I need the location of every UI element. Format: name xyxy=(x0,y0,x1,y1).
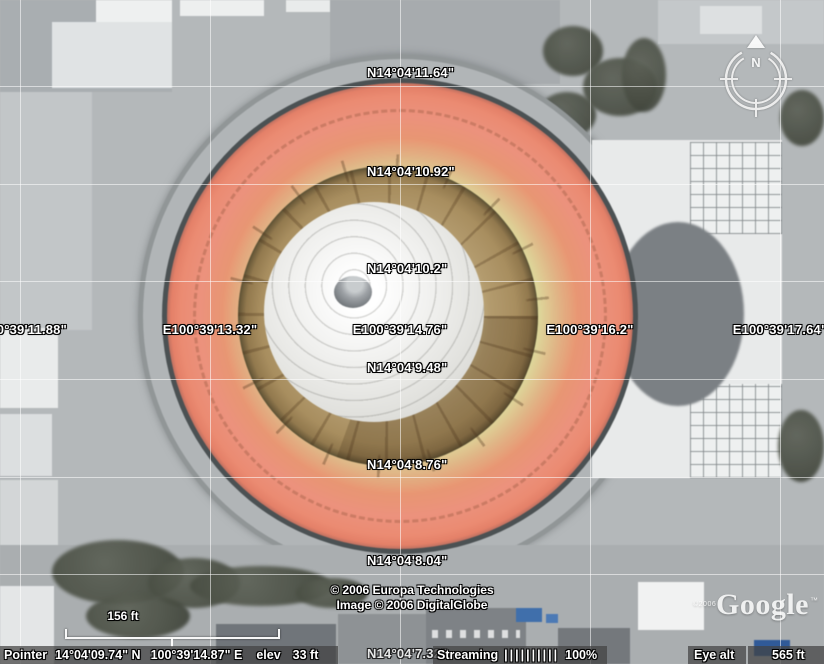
grid-label-latitude: N14°04'10.92" xyxy=(367,164,455,179)
north-arrow-icon xyxy=(747,35,765,48)
grid-label-latitude: N14°04'11.64" xyxy=(367,65,454,80)
grid-line-horizontal xyxy=(0,574,824,575)
elevation-label: elev xyxy=(256,648,280,662)
status-bar: Pointer 14°04'09.74" N 100°39'14.87" E e… xyxy=(0,646,824,664)
grid-label-latitude: N14°04'9.48" xyxy=(367,360,447,375)
grid-label-longitude: E100°39'16.2" xyxy=(546,322,633,337)
grid-line-horizontal xyxy=(0,184,824,185)
streaming-percent: 100% xyxy=(565,648,597,662)
eye-alt-value: 565 ft xyxy=(772,648,805,662)
google-watermark: ©2006 Google ™ xyxy=(688,588,824,628)
streaming-status-chip: Streaming |||||||||| 100% xyxy=(433,646,607,664)
grid-label-latitude: N14°04'8.76" xyxy=(367,457,447,472)
grid-label-latitude: N14°04'8.04" xyxy=(367,553,447,568)
compass-north-label: N xyxy=(751,55,760,70)
pointer-latitude: 14°04'09.74" N xyxy=(55,648,141,662)
google-logo: Google xyxy=(716,588,809,622)
elevation-value: 33 ft xyxy=(293,648,319,662)
compass-rose[interactable]: N xyxy=(712,29,800,121)
eye-alt-label: Eye alt xyxy=(694,648,734,662)
grid-label-latitude: N14°04'10.2" xyxy=(367,261,447,276)
pointer-longitude: 100°39'14.87" E xyxy=(151,648,243,662)
pointer-status-chip: Pointer 14°04'09.74" N 100°39'14.87" E e… xyxy=(0,646,338,664)
logo-copyright: ©2006 xyxy=(693,601,716,608)
grid-line-horizontal xyxy=(0,379,824,380)
grid-label-longitude: E100°39'14.76" xyxy=(353,322,448,337)
grid-label-longitude: E100°39'13.32" xyxy=(163,322,258,337)
eye-alt-value-chip: 565 ft xyxy=(748,646,824,664)
streaming-progress-bars: |||||||||| xyxy=(504,648,559,662)
eye-alt-label-chip: Eye alt xyxy=(688,646,746,664)
grid-label-longitude: E100°39'11.88" xyxy=(0,322,67,337)
grid-line-horizontal xyxy=(0,86,824,87)
grid-line-horizontal xyxy=(0,281,824,282)
pointer-label: Pointer xyxy=(4,648,47,662)
streaming-label: Streaming xyxy=(437,648,498,662)
google-earth-view: N14°04'11.64" N14°04'10.92" N14°04'10.2"… xyxy=(0,0,824,664)
logo-trademark: ™ xyxy=(810,596,818,605)
grid-label-longitude: E100°39'17.64" xyxy=(733,322,824,337)
grid-line-horizontal xyxy=(0,477,824,478)
scale-label: 156 ft xyxy=(90,609,156,623)
